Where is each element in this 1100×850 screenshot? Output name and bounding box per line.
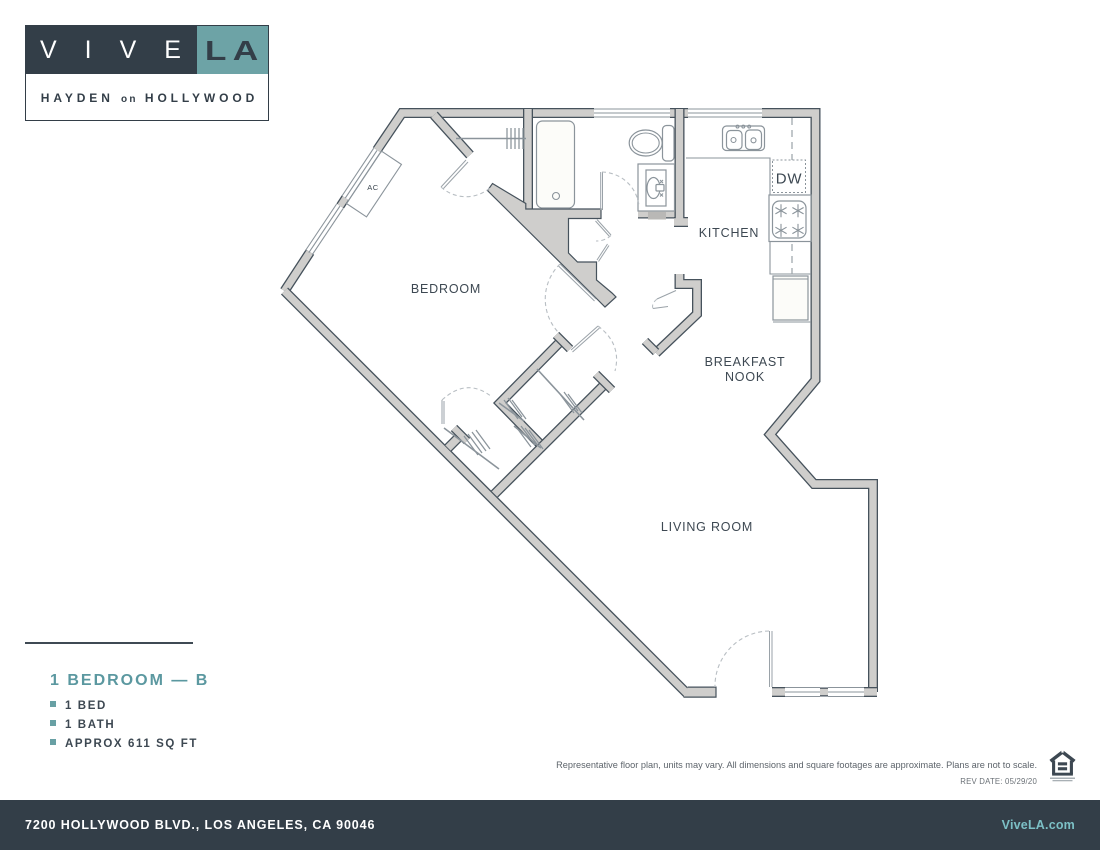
svg-text:BREAKFAST: BREAKFAST bbox=[705, 355, 786, 369]
svg-text:LIVING ROOM: LIVING ROOM bbox=[661, 520, 753, 534]
svg-text:NOOK: NOOK bbox=[725, 370, 765, 384]
svg-text:AC: AC bbox=[367, 183, 379, 192]
svg-text:DW: DW bbox=[776, 171, 803, 188]
svg-text:BEDROOM: BEDROOM bbox=[411, 282, 481, 296]
svg-text:KITCHEN: KITCHEN bbox=[699, 226, 759, 240]
